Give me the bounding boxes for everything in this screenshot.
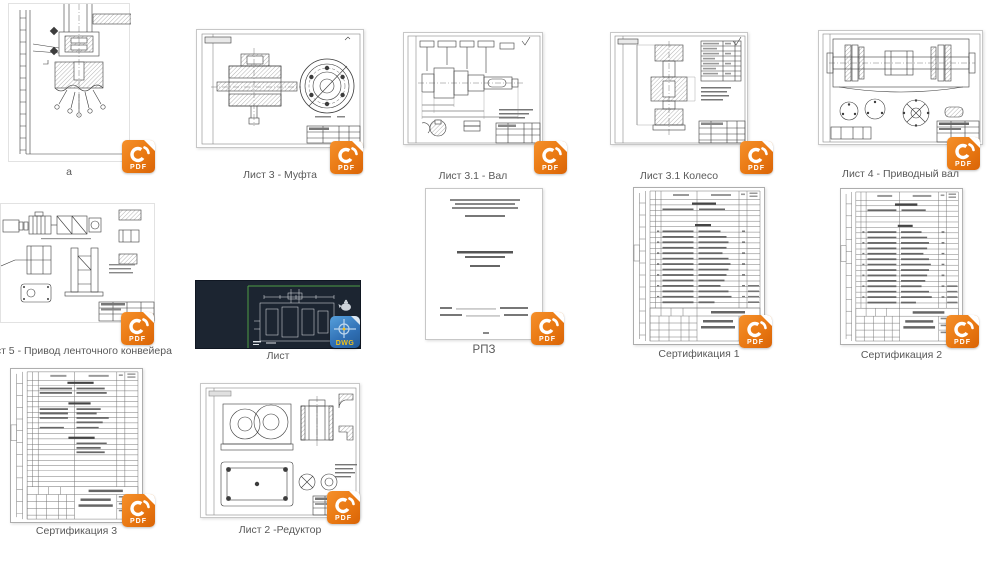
pdf-file-badge: PDF [330, 141, 363, 174]
page-fold [144, 140, 155, 151]
file-tile-cert2[interactable]: PDF Сертификация 2 [840, 188, 963, 345]
pdf-file-badge: PDF [531, 312, 564, 345]
pdf-file-badge: PDF [947, 137, 980, 170]
pdf-file-badge: PDF [740, 141, 773, 174]
file-name-label[interactable]: Лист [156, 350, 400, 362]
page-fold [556, 141, 567, 152]
file-tile-mufta[interactable]: PDF Лист 3 - Муфта [196, 29, 364, 148]
page-fold [143, 312, 154, 323]
file-tile-reduktor[interactable]: PDF Лист 2 -Редуктор [200, 383, 360, 518]
file-tile-list5[interactable]: PDF Лист 5 - Привод ленточного конвейера [0, 203, 155, 323]
file-name-label[interactable]: Лист 2 -Редуктор [160, 524, 400, 536]
pdf-file-badge: PDF [327, 491, 360, 524]
file-name-label[interactable]: Сертификация 3 [0, 525, 183, 537]
file-name-label[interactable]: Сертификация 2 [800, 349, 1000, 361]
file-tile-cert1[interactable]: PDF Сертификация 1 [633, 187, 765, 345]
file-name-label[interactable]: РПЗ [385, 344, 583, 356]
file-preview-cert2[interactable] [840, 188, 963, 345]
file-tile-rpz[interactable]: PDF РПЗ [425, 188, 543, 340]
file-tile-list-dwg[interactable]: DWG Лист [196, 281, 360, 348]
drawing-thumbnail [9, 4, 131, 163]
drawing-thumbnail [404, 33, 544, 146]
page-fold [969, 137, 980, 148]
page-fold [144, 494, 155, 505]
pdf-file-badge: PDF [122, 494, 155, 527]
spec-sheet-thumbnail [840, 188, 963, 345]
file-preview-mufta[interactable] [196, 29, 364, 148]
page-fold [761, 315, 772, 326]
drawing-thumbnail [819, 31, 984, 146]
file-preview-val[interactable] [403, 32, 543, 145]
file-preview-privodnoy-val[interactable] [818, 30, 983, 145]
page-fold [352, 141, 363, 152]
file-tile-koleso[interactable]: PDF Лист 3.1 Колесо [610, 32, 748, 145]
file-preview-koleso[interactable] [610, 32, 748, 145]
dwg-file-badge: DWG [330, 316, 360, 348]
file-tile-val[interactable]: PDF Лист 3.1 - Вал [403, 32, 543, 145]
page-fold [351, 316, 360, 325]
pdf-file-badge: PDF [946, 315, 979, 348]
page-fold [968, 315, 979, 326]
drawing-thumbnail [611, 33, 749, 146]
pdf-file-badge: PDF [122, 140, 155, 173]
file-preview-rpz[interactable] [425, 188, 543, 340]
drawing-thumbnail [197, 30, 365, 149]
page-fold [349, 491, 360, 502]
file-tile-a[interactable]: PDF а [8, 3, 130, 162]
document-thumbnail [426, 189, 544, 341]
pdf-file-badge: PDF [534, 141, 567, 174]
file-tile-privodnoy-val[interactable]: PDF Лист 4 - Приводный вал [818, 30, 983, 145]
file-preview-a[interactable] [8, 3, 130, 162]
file-preview-list5[interactable] [0, 203, 155, 323]
pdf-file-badge: PDF [121, 312, 154, 345]
page-fold [762, 141, 773, 152]
thumbnail-grid: PDF а [0, 0, 1000, 572]
pdf-file-badge: PDF [739, 315, 772, 348]
file-name-label[interactable]: Сертификация 1 [593, 348, 805, 360]
page-fold [553, 312, 564, 323]
drawing-thumbnail [1, 204, 156, 324]
teapot-icon [338, 299, 352, 312]
file-tile-cert3[interactable]: PDF Сертификация 3 [10, 368, 143, 523]
